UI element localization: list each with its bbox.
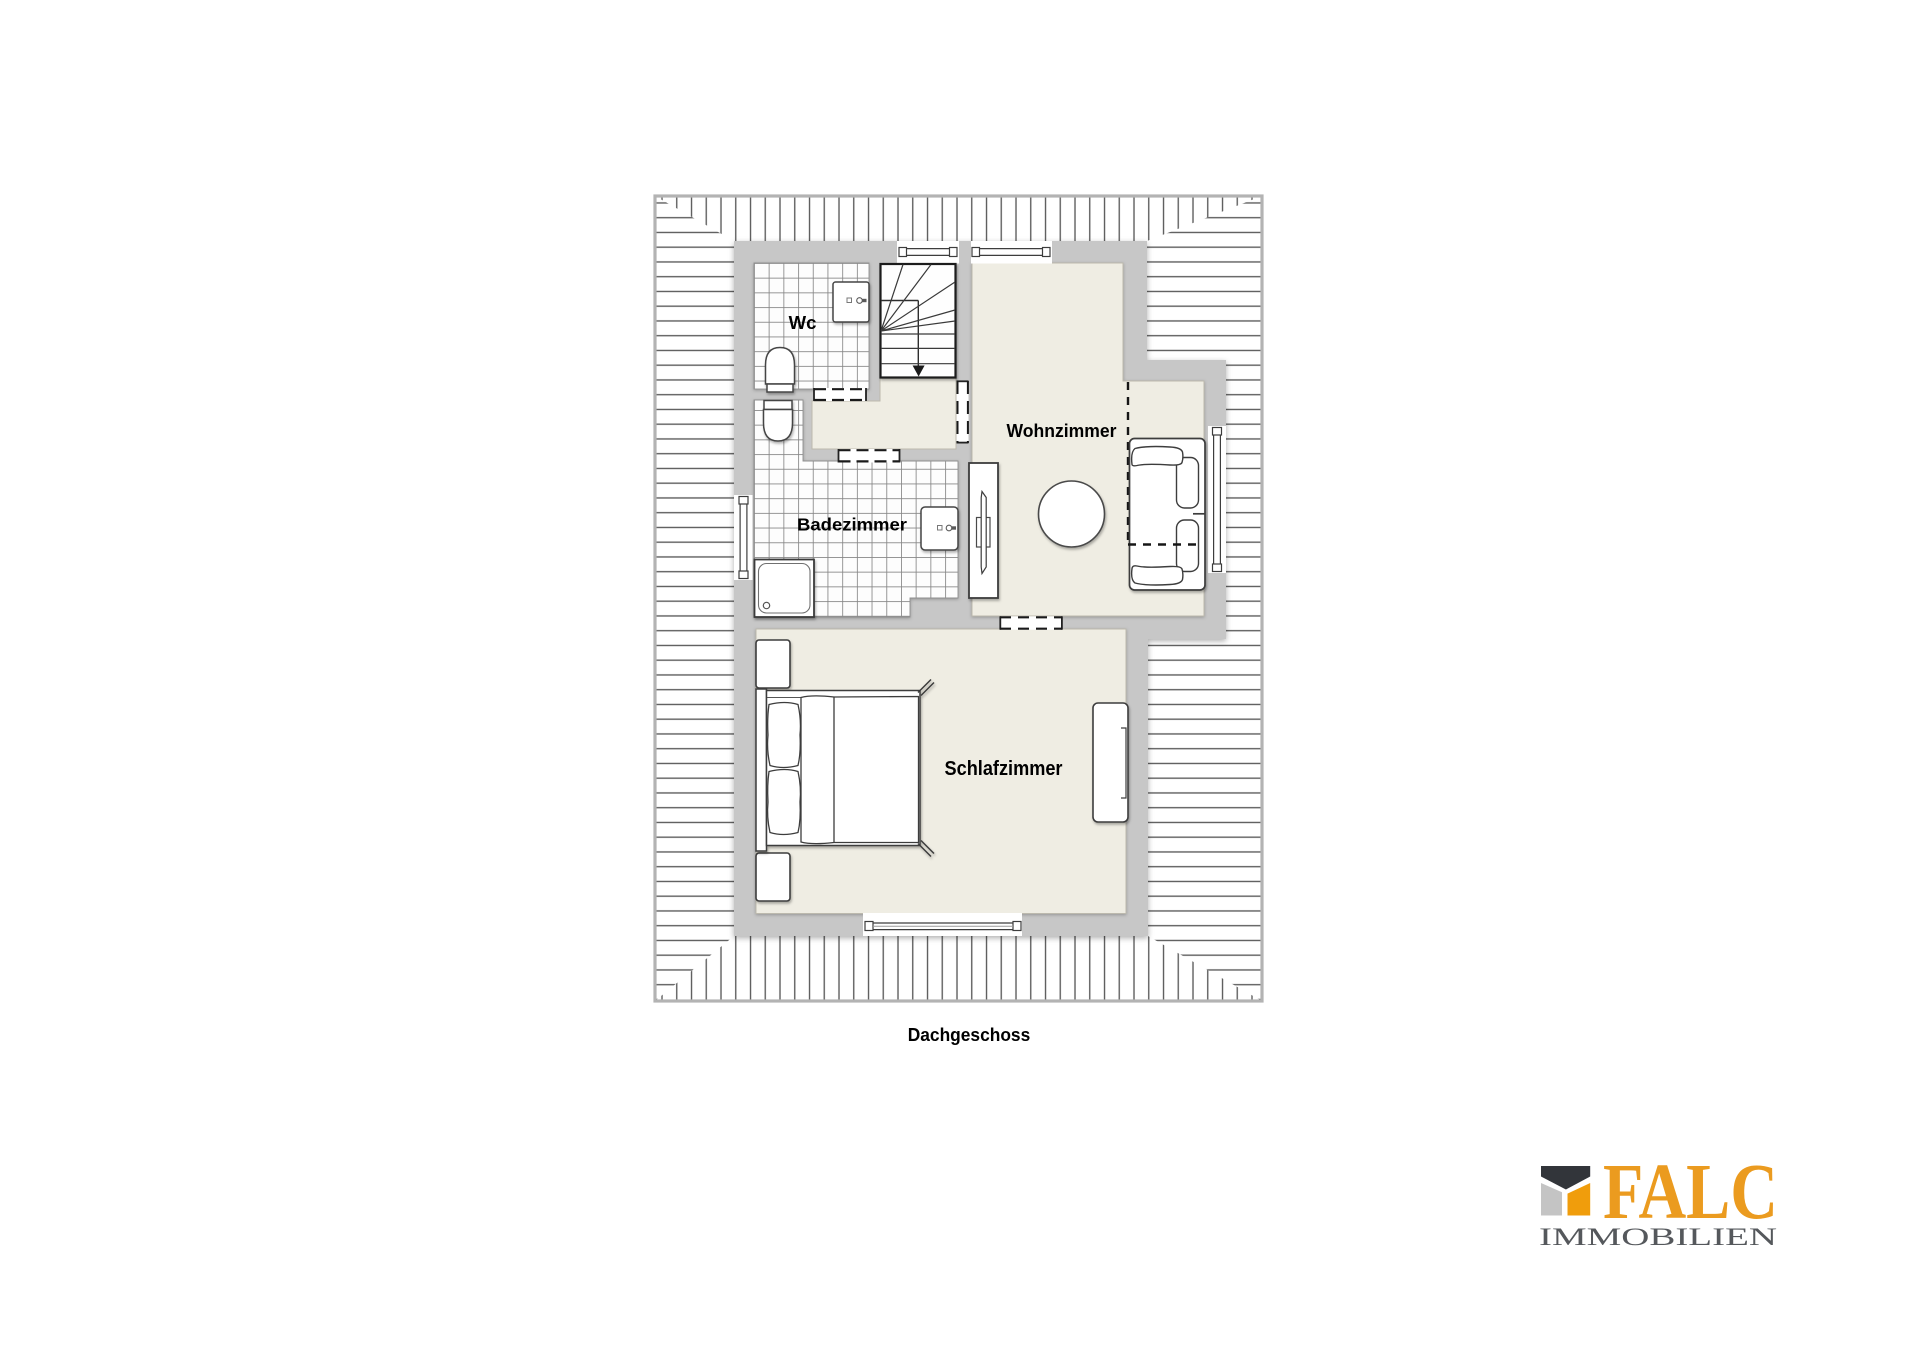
- svg-text:IMMOBILIEN: IMMOBILIEN: [1539, 1224, 1777, 1251]
- svg-text:Dachgeschoss: Dachgeschoss: [908, 1025, 1031, 1045]
- svg-text:Schlafzimmer: Schlafzimmer: [945, 758, 1063, 780]
- svg-text:Wc: Wc: [789, 312, 817, 333]
- svg-text:Badezimmer: Badezimmer: [797, 515, 907, 535]
- svg-text:Wohnzimmer: Wohnzimmer: [1007, 421, 1117, 441]
- svg-text:FALC: FALC: [1603, 1149, 1778, 1236]
